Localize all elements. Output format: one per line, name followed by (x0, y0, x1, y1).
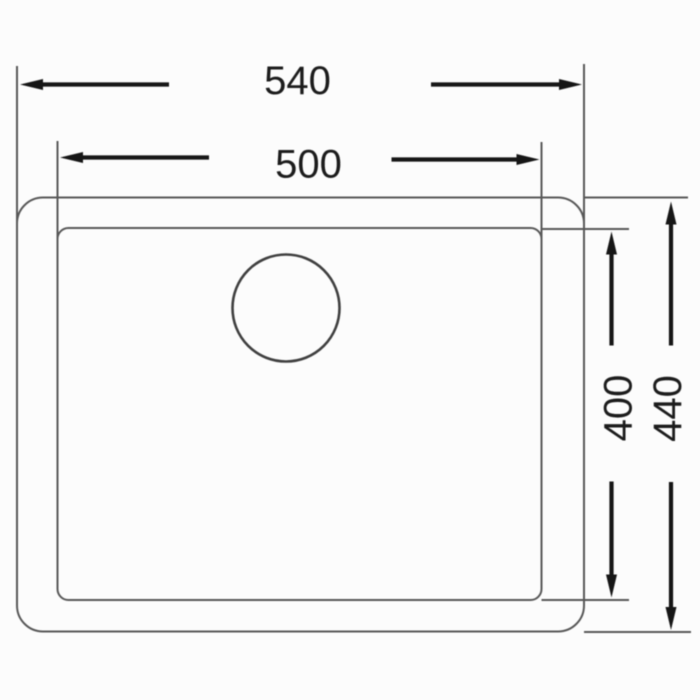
svg-text:500: 500 (275, 143, 342, 187)
svg-text:440: 440 (646, 375, 690, 442)
svg-text:540: 540 (264, 59, 331, 103)
svg-text:400: 400 (597, 375, 641, 442)
